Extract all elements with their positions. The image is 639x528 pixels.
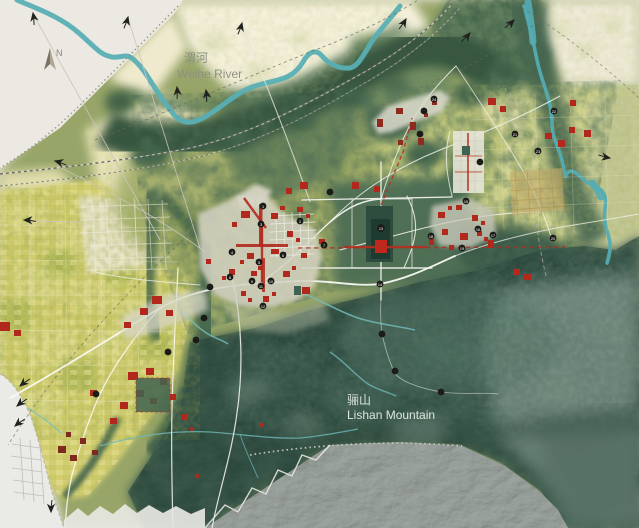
svg-text:22: 22 xyxy=(552,110,556,114)
svg-text:4: 4 xyxy=(231,251,233,255)
svg-text:10: 10 xyxy=(269,280,273,284)
svg-text:渭河: 渭河 xyxy=(184,51,208,65)
svg-text:骊山: 骊山 xyxy=(347,393,371,407)
svg-text:1: 1 xyxy=(262,205,264,209)
svg-text:11: 11 xyxy=(259,285,263,289)
svg-text:N: N xyxy=(56,48,63,58)
svg-text:2: 2 xyxy=(299,220,301,224)
svg-text:12: 12 xyxy=(261,305,265,309)
svg-text:19: 19 xyxy=(460,247,464,251)
svg-text:3: 3 xyxy=(260,223,262,227)
svg-text:15: 15 xyxy=(464,200,468,204)
svg-text:Lishan Mountain: Lishan Mountain xyxy=(347,408,435,422)
svg-text:13: 13 xyxy=(379,227,383,231)
svg-text:20: 20 xyxy=(551,237,555,241)
svg-text:6: 6 xyxy=(282,254,284,258)
svg-text:8: 8 xyxy=(229,276,231,280)
svg-text:7: 7 xyxy=(323,244,325,248)
svg-text:5: 5 xyxy=(258,261,260,265)
svg-text:Weihe River: Weihe River xyxy=(177,67,242,81)
svg-text:9: 9 xyxy=(251,280,253,284)
svg-text:23: 23 xyxy=(536,150,540,154)
svg-text:18: 18 xyxy=(429,235,433,239)
svg-text:21: 21 xyxy=(513,133,517,137)
svg-text:14: 14 xyxy=(378,283,382,287)
svg-text:17: 17 xyxy=(491,234,495,238)
svg-text:24: 24 xyxy=(432,98,436,102)
svg-text:16: 16 xyxy=(476,228,480,232)
